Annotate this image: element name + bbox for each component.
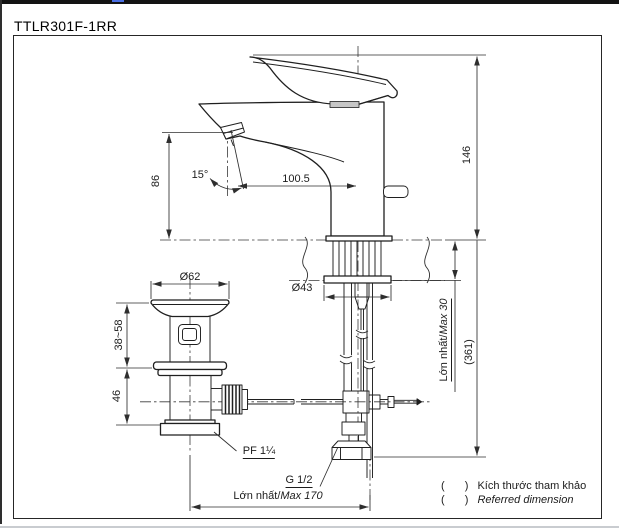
page-bottom-edge bbox=[0, 526, 619, 528]
top-blue-mark bbox=[112, 0, 124, 2]
dim-label-span-max: Lớn nhất/Max 170 bbox=[233, 490, 322, 502]
span-max-vietnamese: Lớn nhất/ bbox=[233, 490, 280, 502]
deck-max-vietnamese: Lớn nhất/ bbox=[438, 335, 450, 382]
spec-sheet-page: TTLR301F-1RR bbox=[0, 0, 619, 532]
dim-label-spout-reach: 100.5 bbox=[282, 173, 310, 185]
legend: ( ) Kích thước tham khảo ( ) Referred di… bbox=[441, 480, 586, 507]
dim-label-deck-max: Lớn nhất/Max 30 bbox=[438, 298, 452, 381]
dim-label-drain-adjust-range: 38~58 bbox=[113, 320, 125, 351]
deck-max-english: Max 30 bbox=[438, 298, 450, 334]
left-black-edge bbox=[0, 0, 2, 524]
dim-label-overall-height: (361) bbox=[463, 339, 475, 365]
dim-label-height-above-deck: 146 bbox=[461, 146, 473, 164]
span-max-english: Max 170 bbox=[280, 490, 322, 502]
top-black-bar bbox=[0, 0, 619, 4]
legend-row-vi: ( ) Kích thước tham khảo bbox=[441, 480, 586, 494]
dim-label-drain-flange-dia: Ø62 bbox=[180, 271, 201, 283]
legend-row-en: ( ) Referred dimension bbox=[441, 494, 586, 508]
drawing-frame bbox=[13, 35, 602, 519]
dim-label-drain-lower-height: 46 bbox=[111, 390, 123, 402]
legend-paren-close: ) bbox=[465, 494, 469, 508]
legend-text-english: Referred dimension bbox=[477, 494, 573, 506]
legend-paren-open: ( bbox=[441, 494, 445, 508]
dim-label-angle: 15° bbox=[192, 169, 209, 181]
label-drain-thread: PF 1¼ bbox=[243, 445, 275, 459]
legend-paren-close: ) bbox=[465, 480, 469, 494]
model-number: TTLR301F-1RR bbox=[14, 18, 117, 34]
label-supply-thread: G 1/2 bbox=[286, 474, 313, 488]
dim-label-escutcheon-dia: Ø43 bbox=[292, 282, 313, 294]
legend-text-vietnamese: Kích thước tham khảo bbox=[477, 480, 586, 492]
legend-paren-open: ( bbox=[441, 480, 445, 494]
dim-label-spout-height: 86 bbox=[150, 175, 162, 187]
